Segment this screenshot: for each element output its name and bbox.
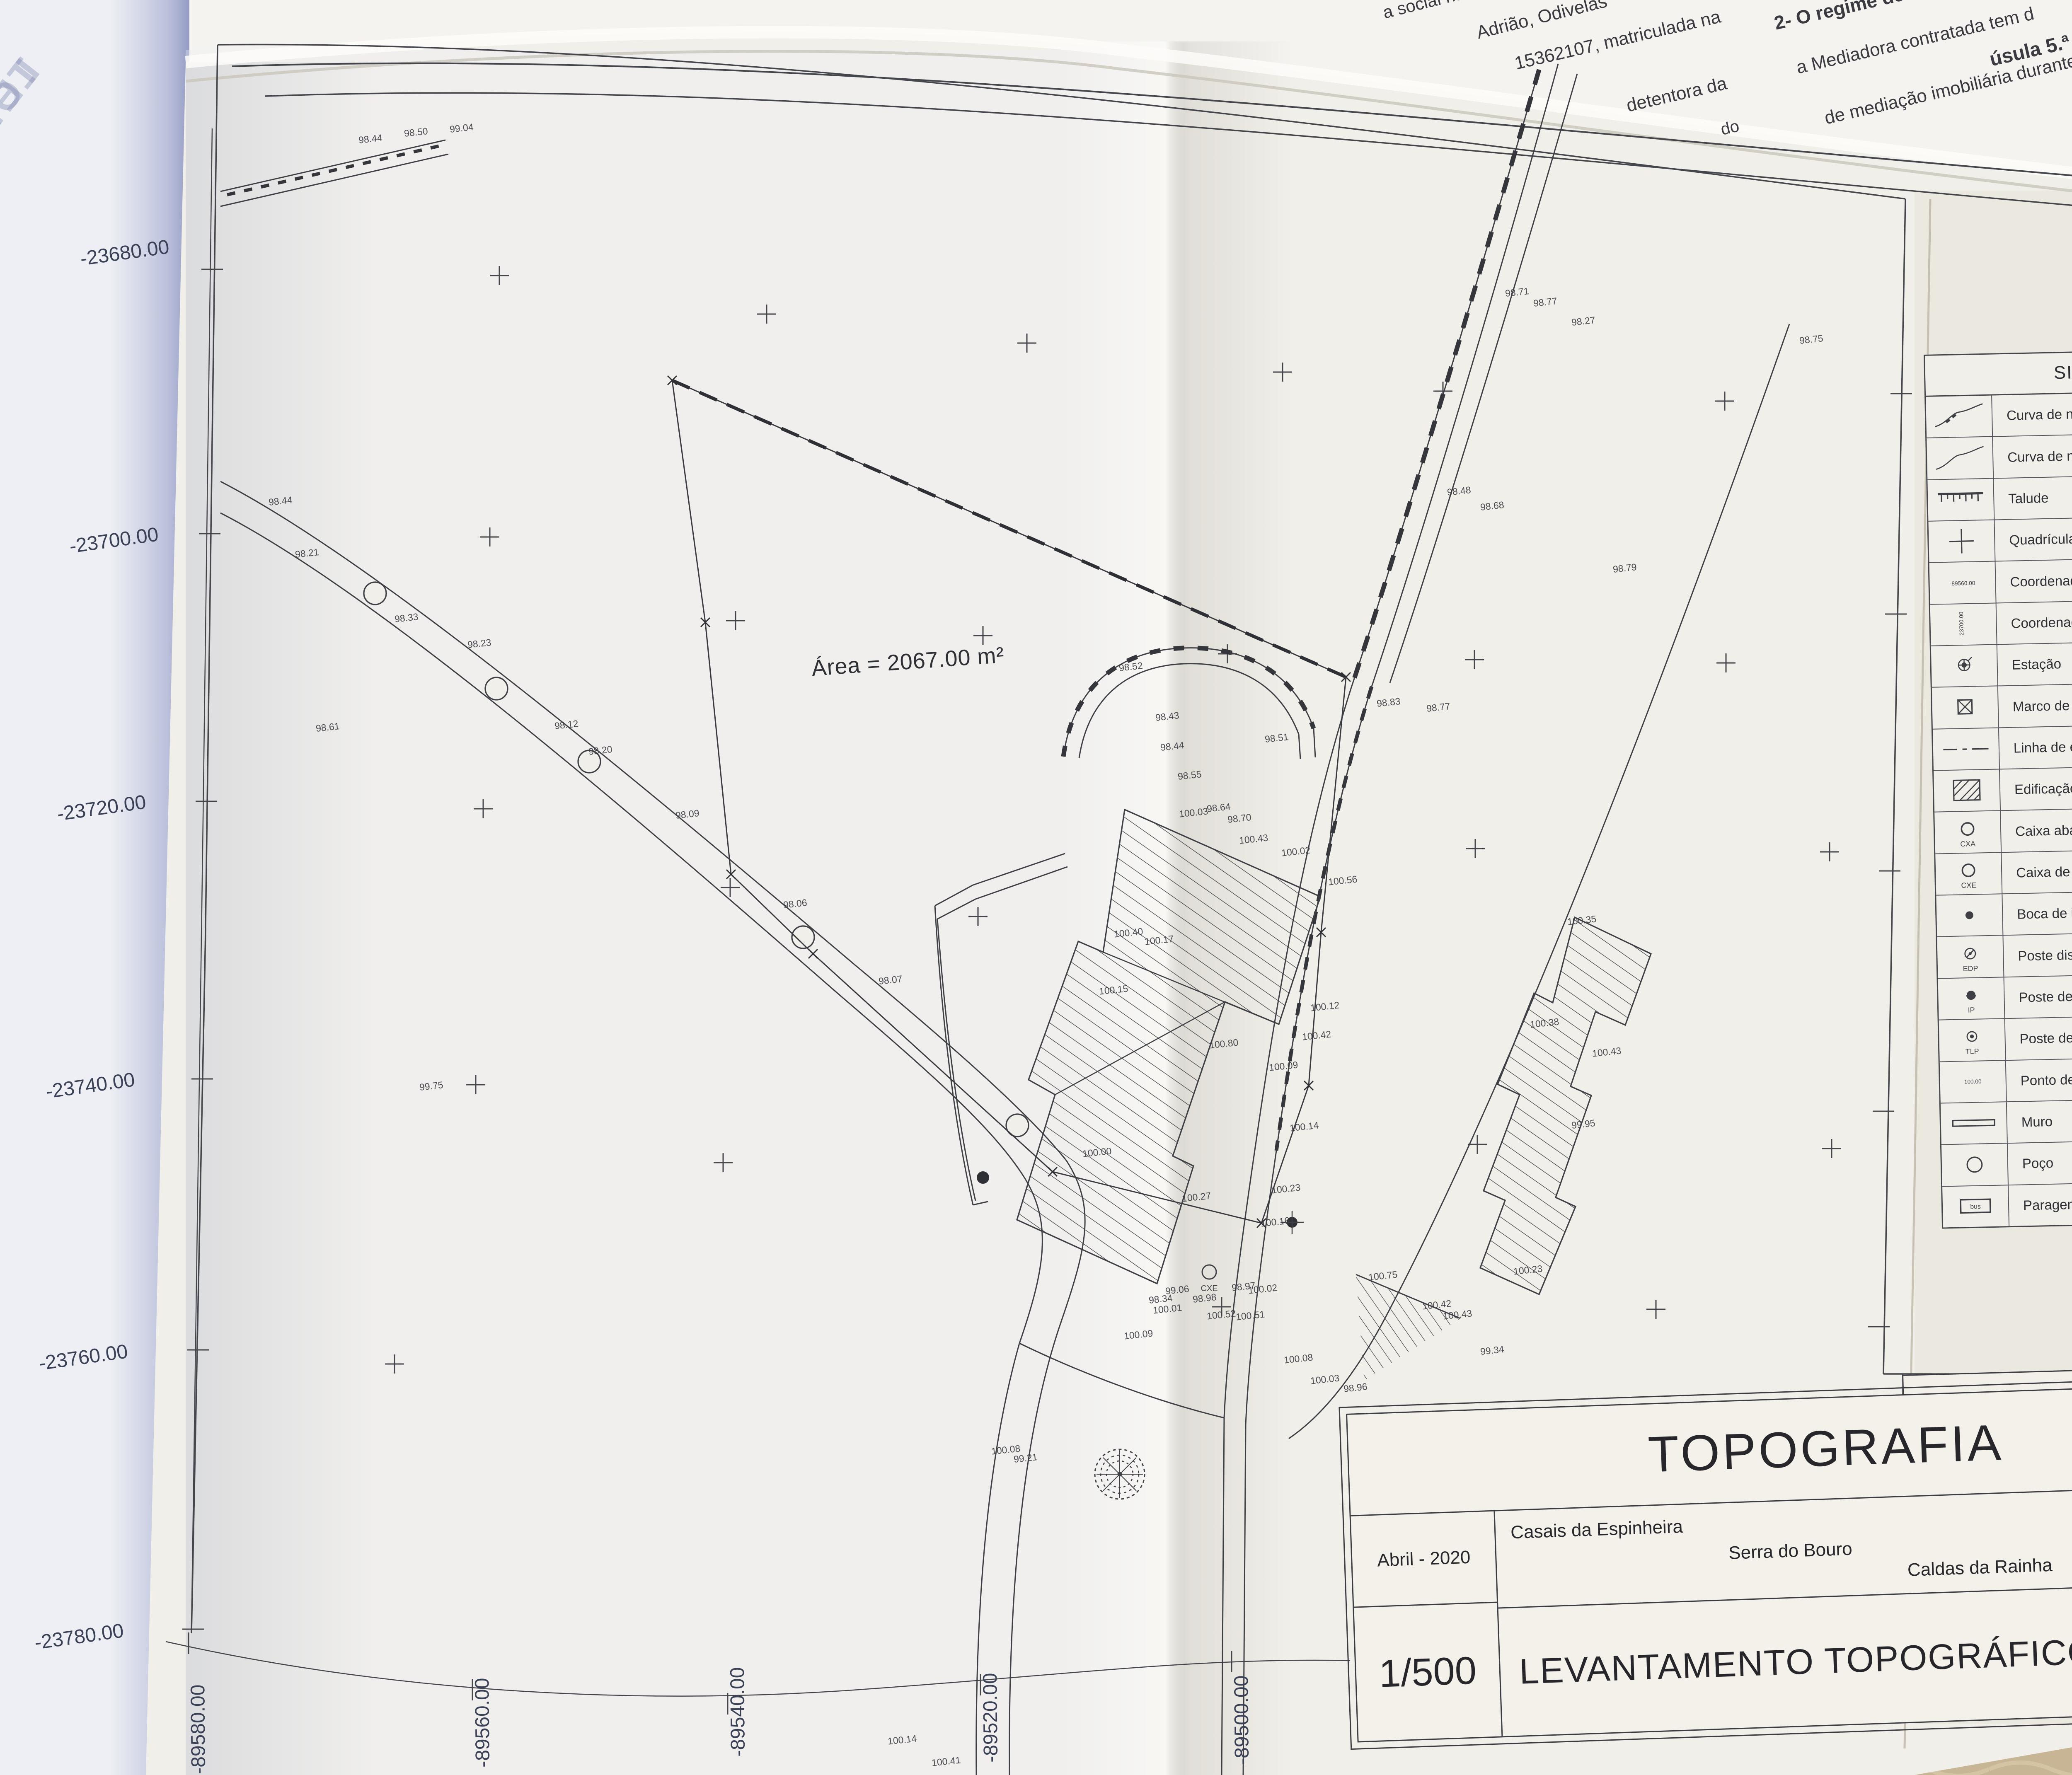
spot-elevation-label: 98.83 (1376, 696, 1401, 709)
spot-elevation-label: 100.02 (1248, 1282, 1278, 1296)
coordinate-label-bottom: -89520.00 (979, 1673, 1002, 1763)
spot-elevation-label: 100.02 (1281, 844, 1311, 858)
legend-title: SIMBOLOGIA (1925, 348, 2072, 397)
legend-item-label: Boca de incêndio (2002, 888, 2072, 935)
legend-item-label: Quadrícula de coordenação (1995, 514, 2072, 561)
coord-p-icon: -89560.00 (1936, 565, 1989, 601)
location-district: Serra do Bouro (1728, 1539, 1852, 1564)
well-icon (1948, 1147, 2001, 1183)
spot-elevation-icon: 100.00 (1946, 1064, 1999, 1100)
legend-symbol-cell (1941, 1102, 2008, 1144)
property-marker-icon (1939, 689, 1992, 725)
legend-item-label: Curva de nível mestra com cota (1992, 389, 2072, 436)
spot-elevation-label: 100.43 (1239, 832, 1269, 846)
legend-symbol-cell (1932, 687, 1999, 729)
spot-elevation-label: 100.15 (1099, 983, 1129, 997)
spot-elevation-label: 100.41 (931, 1754, 961, 1768)
coordinate-label-left: -23680.00 (32, 235, 170, 277)
legend-symbol-cell (1934, 769, 2001, 812)
legend-row: Boca de incêndio (1936, 887, 2072, 937)
legend-item-label: Caixa de esgoto doméstico (2002, 846, 2072, 893)
spot-elevation-label: 100.09 (1123, 1328, 1154, 1342)
svg-text:IP: IP (1968, 1006, 1975, 1014)
document-text-fragment: a social na (1381, 0, 1466, 23)
wall-icon (1947, 1105, 2000, 1141)
spot-elevation-label: 98.98 (1192, 1291, 1217, 1305)
spot-elevation-label: 98.52 (1118, 660, 1143, 674)
title-block-date: Abril - 2020 (1351, 1511, 1497, 1608)
location-parish: Casais da Espinheira (1510, 1516, 1683, 1543)
legend-symbol-cell: CXE (1935, 853, 2002, 895)
talude-icon (1934, 482, 1987, 518)
coordinate-label-bottom: -89540.00 (726, 1667, 750, 1757)
spot-elevation-label: 100.38 (1530, 1016, 1560, 1030)
legend-symbol-cell: bus (1942, 1185, 2009, 1228)
coordinate-label-left: -23700.00 (21, 523, 160, 564)
spot-elevation-label: 98.68 (1480, 499, 1505, 513)
svg-text:-89560.00: -89560.00 (1950, 580, 1975, 586)
spot-elevation-label: 99.34 (1480, 1344, 1505, 1357)
document-text-fragment: detentora da (1624, 73, 1729, 116)
spot-elevation-label: 100.14 (1289, 1120, 1319, 1134)
legend-item-label: Coordenada m (1997, 597, 2072, 644)
legend-row: Curva de nível secundária (1927, 430, 2072, 479)
legend-row: Marco de estrema de propriedade (1932, 679, 2072, 729)
spot-elevation-label: 99.04 (449, 121, 474, 135)
spot-elevation-label: 98.70 (1227, 812, 1252, 825)
light-pole-icon: IP (1945, 981, 1998, 1017)
legend-row: Estação (1931, 638, 2072, 687)
spot-elevation-label: 98.55 (1177, 769, 1202, 782)
legend-row: -89560.00Coordenada p (1929, 554, 2072, 604)
spot-elevation-label: 100.03 (1179, 805, 1209, 820)
fire-hydrant-icon (1943, 897, 1996, 933)
spot-elevation-label: 98.75 (1799, 333, 1824, 346)
spot-elevation-label: 98.27 (1571, 314, 1596, 328)
legend-symbol-cell: IP (1938, 977, 2005, 1020)
legend-item-label: Poço (2008, 1137, 2072, 1185)
title-block-scale: 1/500 (1354, 1603, 1501, 1741)
contour-minor-icon (1933, 440, 1986, 476)
spot-elevation-label: 100.35 (1567, 913, 1597, 927)
document-text-fragment: 2- O regime de (1772, 0, 1906, 34)
spot-elevation-label: 98.06 (783, 897, 808, 911)
spot-elevation-label: 98.07 (878, 973, 903, 987)
spot-elevation-label: 100.23 (1271, 1182, 1301, 1196)
ghost-backfold-text: LEVAN TOPO (0, 50, 50, 174)
station-icon (1938, 648, 1991, 684)
spot-elevation-label: 98.77 (1426, 701, 1451, 714)
spot-elevation-label: 100.09 (1268, 1059, 1299, 1073)
building-icon (1940, 773, 1993, 809)
parcel-area-label: Área = 2067.00 m² (811, 642, 1005, 681)
spot-elevation-label: 98.43 (1155, 710, 1180, 723)
coordinate-label-bottom: -89580.00 (186, 1684, 210, 1774)
coordinate-label-bottom: -89500.00 (1230, 1675, 1254, 1765)
legend-symbol-cell (1941, 1144, 2009, 1186)
legend-item-label: Ponto de cota (2006, 1054, 2072, 1101)
spot-elevation-label: 100.40 (1113, 926, 1144, 940)
spot-elevation-label: 100.56 (1328, 873, 1358, 888)
legend-row: TLPPoste de telecomunicações (1939, 1012, 2072, 1062)
location-municipality: Caldas da Rainha (1907, 1555, 2053, 1581)
legend-row: Poço (1941, 1137, 2072, 1186)
legend-item-label: Muro (2007, 1095, 2072, 1143)
spot-elevation-label: 98.48 (1447, 484, 1472, 498)
spot-elevation-label: 98.44 (1160, 740, 1185, 753)
legend-item-label: Edificação (2000, 763, 2072, 810)
svg-text:CXE: CXE (1961, 881, 1976, 890)
spot-elevation-label: 98.64 (1206, 801, 1231, 815)
spot-elevation-label: 98.33 (394, 611, 419, 625)
legend-row: Curva de nível mestra com cota (1926, 389, 2072, 438)
spot-elevation-label: 100.03 (1310, 1372, 1340, 1386)
spot-elevation-label: 100.12 (1310, 999, 1340, 1013)
grid-cross-icon (1935, 523, 1988, 559)
legend-symbol-cell: -23700.00 (1930, 603, 1997, 646)
coordinate-label-left: -23720.00 (9, 791, 147, 832)
legend-symbol-cell: CXA (1934, 811, 2002, 854)
legend-item-label: Linha de estrema (1999, 721, 2072, 769)
legend-row: Edificação (1934, 762, 2072, 812)
legend-row: Muro (1941, 1095, 2072, 1144)
svg-text:-23700.00: -23700.00 (1958, 612, 1965, 637)
spot-elevation-label: 100.17 (1144, 933, 1174, 947)
legend-panel: SIMBOLOGIA Curva de nível mestra com cot… (1924, 347, 2072, 1229)
legend-symbol-cell (1933, 728, 2000, 770)
spot-elevation-label: 98.77 (1533, 295, 1558, 309)
legend-item-label: Marco de estrema de propriedade (1998, 680, 2072, 727)
spot-elevation-label: 98.96 (1343, 1381, 1368, 1395)
svg-text:bus: bus (1970, 1203, 1981, 1211)
legend-symbol-cell (1927, 479, 1995, 521)
spot-elevation-label: 98.71 (1505, 285, 1530, 299)
spot-elevation-label: 99.95 (1571, 1117, 1596, 1131)
spot-elevation-label: 100.80 (1209, 1037, 1239, 1051)
bus-stop-icon: bus (1949, 1188, 2002, 1224)
legend-row: Linha de estrema (1933, 721, 2072, 770)
coord-m-icon: -23700.00 (1937, 607, 1990, 643)
spot-elevation-label: 98.12 (554, 718, 579, 732)
telecom-pole-icon: TLP (1946, 1022, 1999, 1058)
spot-elevation-label: 98.23 (467, 637, 492, 651)
legend-item-label: Caixa abastecimento de água (2001, 805, 2072, 852)
spot-elevation-label: 98.44 (268, 494, 293, 508)
legend-row: Talude (1927, 471, 2072, 521)
legend-item-label: Coordenada p (1996, 555, 2072, 602)
spot-elevation-label: 100.27 (1181, 1190, 1212, 1204)
legend-symbol-cell: 100.00 (1940, 1061, 2007, 1103)
legend-row: 100.00Ponto de cota (1940, 1053, 2072, 1103)
svg-text:TLP: TLP (1965, 1047, 1979, 1056)
spot-elevation-label: 99.75 (419, 1079, 444, 1093)
coordinate-label-left: -23780.00 (0, 1619, 125, 1661)
document-text-fragment: do (1719, 117, 1741, 139)
coordinate-label-left: -23740.00 (0, 1068, 136, 1110)
svg-text:EDP: EDP (1963, 964, 1978, 973)
spot-elevation-label: 98.61 (315, 721, 340, 734)
spot-elevation-label: 100.23 (1513, 1263, 1543, 1277)
spot-elevation-label: 98.09 (675, 808, 700, 821)
water-box-icon: CXA (1941, 814, 1994, 850)
spot-elevation-label: 98.79 (1612, 561, 1637, 575)
svg-text:100.00: 100.00 (1964, 1078, 1982, 1085)
boundary-line-icon (1939, 731, 1992, 767)
coordinate-label-bottom: -89560.00 (471, 1678, 494, 1768)
legend-symbol-cell (1926, 396, 1993, 438)
spot-elevation-label: 98.50 (404, 126, 428, 139)
legend-row: -23700.00Coordenada m (1930, 596, 2072, 646)
legend-row: busParagem BUS (1942, 1178, 2072, 1228)
legend-item-label: Curva de nível secundária (1993, 430, 2072, 478)
spot-elevation-label: 100.08 (1283, 1352, 1314, 1366)
legend-row: CXECaixa de esgoto doméstico (1935, 845, 2072, 895)
legend-symbol-cell: EDP (1937, 936, 2004, 978)
spot-elevation-label: 100.75 (1368, 1269, 1398, 1283)
title-block: TOPOGRAFIA Abril - 2020 1/500 Casais da … (1346, 1380, 2072, 1742)
spot-elevation-label: 100.43 (1592, 1045, 1622, 1059)
legend-symbol-cell (1931, 645, 1998, 687)
legend-symbol-cell: TLP (1939, 1019, 2006, 1061)
legend-symbol-cell (1928, 520, 1995, 563)
spot-elevation-label: 100.51 (1235, 1308, 1266, 1323)
legend-item-label: Poste de telecomunicações (2005, 1013, 2072, 1060)
spot-elevation-label: 98.44 (358, 132, 383, 146)
spot-elevation-label: 98.20 (588, 744, 613, 757)
legend-row: Quadrícula de coordenação (1928, 513, 2072, 563)
legend-symbol-cell: -89560.00 (1929, 562, 1997, 604)
spot-elevation-label: 98.21 (295, 547, 320, 560)
spot-elevation-label: 99.21 (1013, 1451, 1038, 1465)
legend-symbol-cell (1936, 894, 2003, 936)
sewer-box-icon: CXE (1942, 856, 1995, 892)
legend-item-label: Talude (1994, 472, 2072, 519)
legend-row: CXACaixa abastecimento de água (1934, 804, 2072, 854)
coordinate-label-left: -23760.00 (0, 1340, 129, 1381)
legend-item-label: Poste distribuição EDP (2003, 929, 2072, 977)
spot-elevation-label: 100.14 (887, 1733, 917, 1747)
legend-item-label: Paragem BUS (2009, 1179, 2072, 1226)
spot-elevation-label: 100.42 (1302, 1028, 1332, 1042)
legend-symbol-cell (1927, 437, 1994, 479)
svg-text:CXA: CXA (1960, 839, 1975, 848)
photo-of-topographic-plan: CXE NORTE LEVAN TOPO a social naAdrião, … (0, 0, 2072, 1775)
spot-elevation-label: 100.52 (1206, 1308, 1237, 1322)
edp-pole-icon: EDP (1944, 939, 1997, 975)
contour-major-icon (1932, 399, 1985, 435)
legend-row: EDPPoste distribuição EDP (1937, 929, 2072, 978)
spot-elevation-label: 98.51 (1264, 731, 1289, 745)
legend-item-label: Estação (1997, 638, 2072, 686)
spot-elevation-label: 100.16 (1260, 1215, 1290, 1229)
legend-row: IPPoste de iluminação (1938, 970, 2072, 1020)
spot-elevation-label: 100.43 (1443, 1308, 1473, 1322)
legend-item-label: Poste de iluminação (2004, 971, 2072, 1018)
title-block-subtitle: LEVANTAMENTO TOPOGRÁFICO (1498, 1587, 2072, 1736)
spot-elevation-label: 100.00 (1082, 1145, 1112, 1159)
